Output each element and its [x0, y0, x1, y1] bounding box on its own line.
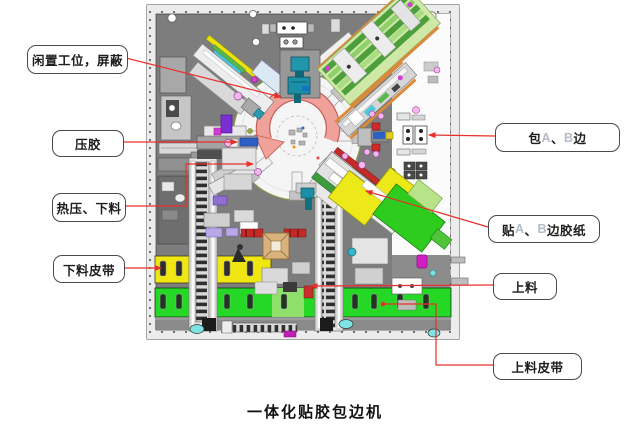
callout-tape-ab-edges: 贴A、B边胶纸: [488, 215, 600, 243]
callout-loading-text: 上料: [512, 277, 538, 296]
callout-wrap-part: B: [564, 131, 574, 145]
callout-wrap-part: 边: [574, 128, 587, 147]
diagram-caption: 一体化贴胶包边机: [210, 401, 420, 422]
callout-unloading-belt-text: 下料皮带: [63, 260, 115, 279]
callout-tape-part: 边胶纸: [547, 220, 586, 239]
callout-press-text: 压胶: [75, 134, 101, 153]
callout-loading-belt-text: 上料皮带: [511, 357, 563, 376]
callout-tape-part: B: [538, 222, 548, 236]
callout-idle-station: 闲置工位，屏蔽: [27, 45, 128, 74]
callout-loading: 上料: [493, 273, 557, 300]
callout-unloading-belt: 下料皮带: [53, 255, 125, 283]
callout-idle-text: 闲置工位，屏蔽: [32, 50, 123, 69]
callout-wrap-part: A: [541, 131, 551, 145]
callout-press-glue: 压胶: [52, 130, 124, 157]
callout-tape-part: 、: [524, 220, 537, 239]
callout-tape-part: 贴: [502, 220, 515, 239]
top-gripper: [280, 50, 320, 103]
callout-tape-part: A: [515, 222, 525, 236]
callout-wrap-ab-edges: 包A、B边: [495, 123, 620, 152]
vertical-rail-left: [189, 152, 217, 331]
callout-wrap-part: 包: [528, 128, 541, 147]
callout-wrap-part: 、: [551, 128, 564, 147]
callout-loading-belt: 上料皮带: [493, 353, 582, 380]
vertical-rail-right: [315, 186, 343, 331]
diagram-page: 闲置工位，屏蔽 压胶 热压、下料 下料皮带 包A、B边 贴A、B边胶纸 上料 上…: [0, 0, 628, 429]
callout-hot-press-unload: 热压、下料: [52, 193, 126, 222]
callout-hot-press-text: 热压、下料: [56, 198, 121, 217]
